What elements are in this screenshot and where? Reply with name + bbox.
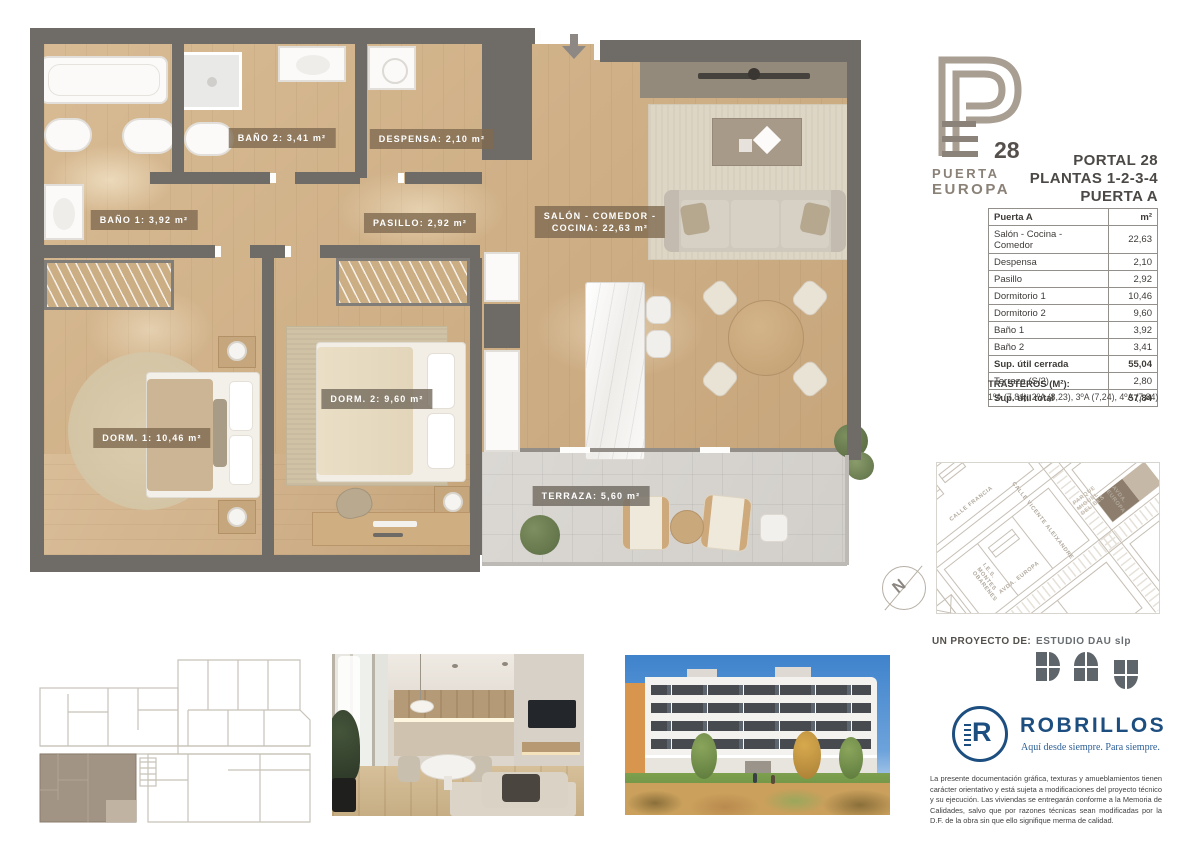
table-row: Salón - Cocina - Comedor22,63 [989,226,1158,254]
dau-logo-u [1114,660,1138,689]
foreground-shrubs [625,783,890,815]
person [753,773,757,783]
pillow-accent [213,399,227,467]
desk [312,512,472,546]
disclaimer-text: La presente documentación gráfica, textu… [930,774,1162,827]
terrace-edge [845,455,849,565]
lamp [227,341,247,361]
fridge [484,252,520,302]
wardrobe [336,258,470,306]
lamp [227,507,247,527]
wall [470,258,482,555]
door-frame [285,246,291,257]
wall [600,40,861,62]
compass-north-label: N [890,576,910,597]
building-photo [625,655,890,815]
lounge-chair [699,494,752,553]
wall [250,245,285,258]
dining-table [728,300,804,376]
developer-name: ROBRILLOS [1020,714,1166,738]
room-label-bano2: BAÑO 2: 3,41 m² [229,128,336,148]
tree [839,737,863,779]
table-row: Despensa2,10 [989,254,1158,271]
person [771,775,775,784]
brand-name-line2: EUROPA [932,181,1010,198]
shower [180,52,242,110]
appliance-door [382,58,408,84]
orange-building [625,683,645,777]
wall [405,172,482,184]
stool [646,330,671,358]
table-row: Dormitorio 29,60 [989,305,1158,322]
bathtub [40,56,168,104]
window-band [651,703,871,713]
terrace-edge [482,562,847,566]
door-frame [560,447,590,453]
tree [691,733,717,779]
wall [847,40,861,460]
interior-photo [332,654,584,816]
sink-basin [53,198,75,230]
sofa-pillow [680,202,711,236]
room-label-bano1: BAÑO 1: 3,92 m² [91,210,198,230]
table-col-name: Puerta A [989,209,1109,226]
kitchen-counter [484,350,520,452]
plant-pot [332,778,356,812]
room-label-despensa: DESPENSA: 2,10 m² [370,129,494,149]
room-label-dorm2: DORM. 2: 9,60 m² [321,389,432,409]
coffee-table [712,118,802,166]
trasteros-values: 1ºA (7,84), 2ºA (8,23), 3ºA (7,24), 4ºA … [988,392,1158,402]
areas-table: Puerta Am² Salón - Cocina - Comedor22,63… [988,208,1158,407]
arrow-head [562,46,586,59]
location-map: CALLE FRANCIA CALLE VICENTE ALEIXANDRE A… [936,462,1160,614]
sink-basin [296,55,330,75]
downlight [502,662,508,666]
tv-screen [528,700,576,728]
pillow [229,381,253,431]
wall [30,28,44,572]
coffee-table-decor [753,126,781,154]
brand-name-line1: PUERTA [932,166,999,181]
door-frame [215,246,221,257]
pantry-appliance [368,46,416,90]
table-row-subtotal: Sup. útil cerrada55,04 [989,356,1158,373]
heading-puerta: PUERTA A [1030,188,1158,206]
door-frame [594,42,600,60]
dining-chair [398,756,420,782]
puerta-europa-logo: 28 [930,52,1034,164]
door-frame [270,173,276,183]
sheet-heading: PORTAL 28 PLANTAS 1-2-3-4 PUERTA A [1030,152,1158,206]
duvet [317,347,413,475]
desk-items [373,521,417,527]
desk-items [373,533,403,537]
wall [30,28,535,44]
tv-mount [748,68,760,80]
table-col-unit: m² [1109,209,1158,226]
sofa-arm [831,190,846,252]
marketing-sheet: BAÑO 2: 3,41 m² DESPENSA: 2,10 m² BAÑO 1… [0,0,1200,849]
chair-arm [662,497,669,549]
lamp [443,492,463,512]
wall [295,172,360,184]
robrillos-logo-icon: R [952,706,1008,762]
window-band [651,721,871,731]
table-row: Baño 13,92 [989,322,1158,339]
toilet [122,118,176,154]
bed [316,342,466,482]
bidet [44,118,92,152]
logo-number: 28 [994,137,1020,163]
kitchen-counter [394,722,514,756]
logo-stripes [964,724,971,746]
coffee-table-decor [739,139,752,152]
wall [150,172,270,184]
wall [172,44,184,180]
developer-tagline: Aquí desde siempre. Para siempre. [1021,742,1160,753]
trasteros-title: TRASTEROS (M²): [988,379,1070,390]
door-frame [535,30,541,42]
room-label-dorm1: DORM. 1: 10,46 m² [93,428,210,448]
dau-logo-a [1074,652,1098,681]
room-label-salon: SALÓN - COMEDOR - COCINA: 22,63 m² [535,206,665,238]
side-table [670,510,704,544]
heading-plantas: PLANTAS 1-2-3-4 [1030,170,1158,188]
oven-column [484,304,520,348]
media-console [522,742,580,752]
project-label: UN PROYECTO DE: [932,636,1031,647]
pillow [427,413,455,469]
wall [262,258,274,555]
logo-initial: R [972,717,992,748]
compass-icon: N [882,566,926,610]
bathtub-inner [48,64,160,96]
plant [520,515,560,555]
table-row: Dormitorio 110,46 [989,288,1158,305]
window-band [651,739,871,749]
pendant-lamp [420,654,421,702]
toilet [184,122,234,156]
table-row: Pasillo2,92 [989,271,1158,288]
wall [320,245,480,258]
arrow-stem [570,34,578,46]
sofa-arm [664,190,679,252]
shower-drain [207,77,217,87]
kitchen-island [585,282,645,460]
pillow [229,435,253,485]
downlight [452,664,458,668]
studio-name: ESTUDIO DAU slp [1036,636,1131,647]
stool [646,296,671,324]
key-plan-highlight-terrace [106,800,136,822]
heading-portal: PORTAL 28 [1030,152,1158,170]
table-row: Baño 23,41 [989,339,1158,356]
wall [30,245,215,258]
stool [760,514,788,542]
sink [44,184,84,240]
room-label-pasillo: PASILLO: 2,92 m² [364,213,476,233]
sofa-cushion [731,200,779,248]
table-pedestal [444,776,452,790]
wardrobe [44,260,174,310]
sofa [664,190,846,252]
wall [355,44,367,178]
tree [793,731,821,779]
sink [278,46,346,82]
room-label-terraza: TERRAZA: 5,60 m² [533,486,650,506]
entry-arrow-icon [562,34,586,60]
door-frame [700,447,730,453]
key-plan [28,650,316,830]
throw-blanket [502,774,540,802]
door-frame [398,173,404,183]
pendant-shade [410,700,434,713]
dau-logo-d [1036,652,1060,681]
wall [30,555,480,572]
console-glow [522,752,580,755]
window-band [651,685,871,695]
